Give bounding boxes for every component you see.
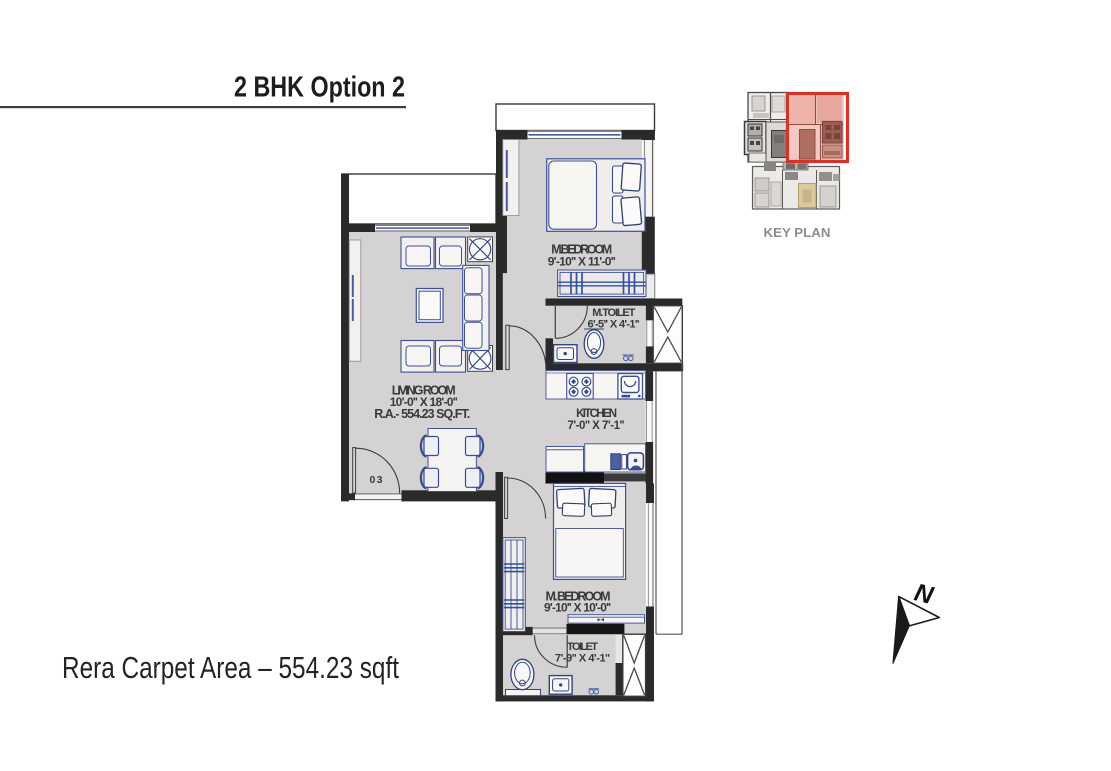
svg-text:R.A.- 554.23 SQ.FT.: R.A.- 554.23 SQ.FT.: [374, 407, 470, 421]
svg-text:KEY PLAN: KEY PLAN: [764, 225, 831, 240]
svg-text:03: 03: [370, 474, 383, 486]
svg-text:9'-10'' X 11'-0'': 9'-10'' X 11'-0'': [548, 254, 616, 268]
svg-text:TOILET: TOILET: [567, 641, 598, 653]
svg-text:KITCHEN: KITCHEN: [576, 408, 617, 420]
svg-text:7'-9'' X 4'-1'': 7'-9'' X 4'-1'': [555, 652, 610, 664]
svg-text:Rera Carpet Area – 554.23 sqft: Rera Carpet Area – 554.23 sqft: [62, 650, 399, 685]
svg-text:7'-0'' X 7'-1'': 7'-0'' X 7'-1'': [568, 420, 625, 432]
svg-text:6'-5'' X 4'-1'': 6'-5'' X 4'-1'': [588, 319, 640, 331]
svg-text:M.TOILET: M.TOILET: [592, 307, 635, 319]
svg-text:2 BHK Option 2: 2 BHK Option 2: [234, 72, 405, 104]
svg-text:9'-10'' X 10'-0'': 9'-10'' X 10'-0'': [544, 601, 611, 615]
